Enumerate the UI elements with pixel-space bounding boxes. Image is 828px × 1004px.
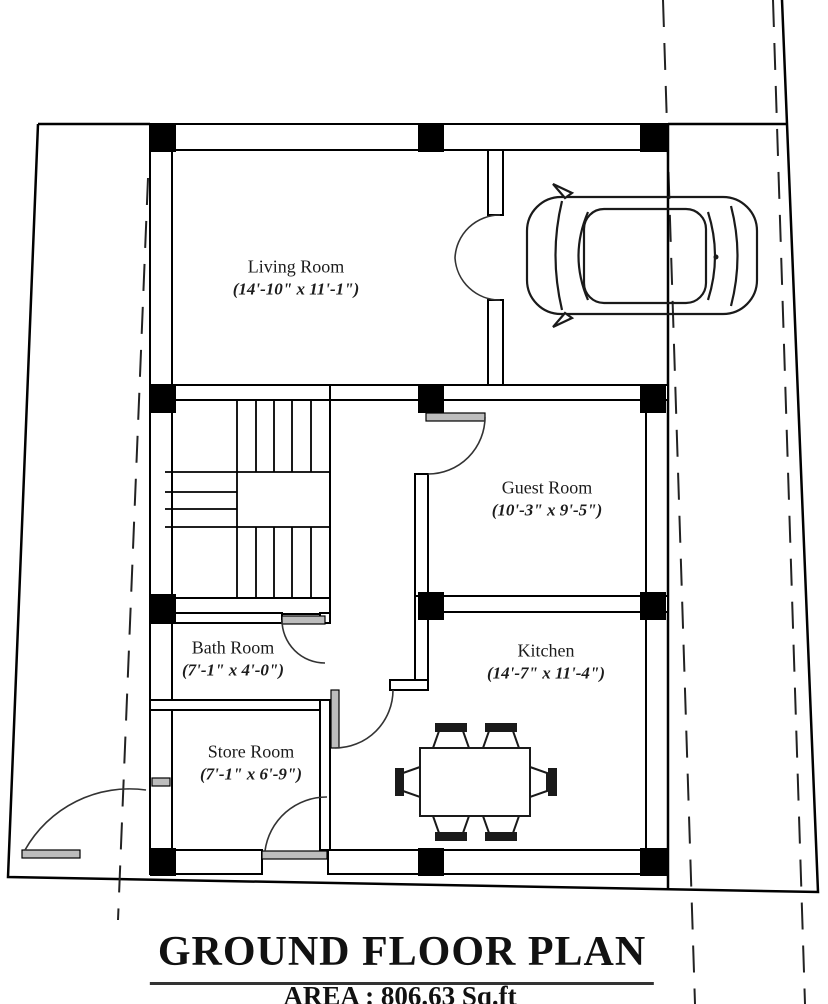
chair xyxy=(433,731,469,748)
door-swing-arc xyxy=(428,417,485,474)
wall-living-right-upper xyxy=(488,150,503,215)
wall-stairs-bottom xyxy=(150,598,330,614)
door-swing-arc xyxy=(282,620,325,663)
wall-living-right-lower xyxy=(488,300,503,385)
wall-bottom-right-segment xyxy=(328,850,668,874)
wall-guest-kitchen-divider xyxy=(418,596,668,612)
bath-room-label: Bath Room (7'-1" x 4'-0") xyxy=(182,636,284,681)
kitchen-label: Kitchen (14'-7" x 11'-4") xyxy=(487,639,605,684)
room-dimensions: (14'-7" x 11'-4") xyxy=(487,663,605,685)
wall-store-right xyxy=(320,700,330,850)
door-leaf xyxy=(331,690,339,748)
room-dimensions: (7'-1" x 6'-9") xyxy=(200,764,302,786)
floor-plan-page: Living Room (14'-10" x 11'-1") Guest Roo… xyxy=(0,0,828,1004)
staircase xyxy=(165,400,330,598)
column xyxy=(640,848,668,876)
setback-line-left xyxy=(118,178,148,920)
bath-room-door xyxy=(282,616,325,663)
car-hood-line xyxy=(556,201,563,310)
column xyxy=(150,594,176,622)
stair-treads-upper xyxy=(256,400,311,472)
kitchen-door xyxy=(331,690,393,748)
column xyxy=(418,124,444,152)
wall-top xyxy=(150,124,668,150)
column xyxy=(640,592,666,620)
store-room-door xyxy=(262,797,327,859)
wall-right xyxy=(646,385,668,874)
plan-title: GROUND FLOOR PLAN xyxy=(150,928,654,985)
column xyxy=(150,124,176,152)
living-room-label: Living Room (14'-10" x 11'-1") xyxy=(233,255,360,300)
chair xyxy=(530,767,547,797)
door-leaf xyxy=(22,850,80,858)
door-leaf xyxy=(426,413,485,421)
car-top-view xyxy=(527,184,757,327)
column xyxy=(640,124,668,152)
room-name: Living Room xyxy=(233,255,360,278)
chair xyxy=(403,767,420,797)
guest-room-label: Guest Room (10'-3" x 9'-5") xyxy=(492,476,602,521)
chair-back xyxy=(486,833,516,840)
wall-guest-left-lower xyxy=(415,474,428,596)
wall-kitchen-left-stub xyxy=(390,680,428,690)
chair-back xyxy=(486,724,516,731)
car-body xyxy=(527,197,757,314)
column xyxy=(418,385,444,413)
double-entrance-door xyxy=(455,215,500,300)
car-cabin xyxy=(584,209,706,303)
door-swing-arc xyxy=(25,789,146,850)
car-mirror-top xyxy=(553,184,572,198)
room-dimensions: (10'-3" x 9'-5") xyxy=(492,500,602,522)
chair xyxy=(433,816,469,833)
door-leaf xyxy=(282,616,325,624)
door-leaf xyxy=(262,851,327,859)
door-swing-arc xyxy=(455,258,500,300)
floor-plan-drawing xyxy=(0,0,828,1004)
dining-table-set xyxy=(396,724,556,840)
dining-table xyxy=(420,748,530,816)
store-room-label: Store Room (7'-1" x 6'-9") xyxy=(200,740,302,785)
main-gate-door xyxy=(22,789,146,858)
column xyxy=(640,385,666,413)
column xyxy=(150,385,176,413)
window-marker xyxy=(152,778,170,786)
chair xyxy=(483,816,519,833)
door-swing-arc xyxy=(335,690,393,748)
chair-back xyxy=(396,769,403,795)
chair xyxy=(483,731,519,748)
room-dimensions: (14'-10" x 11'-1") xyxy=(233,279,360,301)
chair-back xyxy=(436,833,466,840)
column xyxy=(150,848,176,876)
stair-treads-lower xyxy=(256,527,311,598)
car-mirror-bottom xyxy=(553,313,572,327)
room-dimensions: (7'-1" x 4'-0") xyxy=(182,660,284,682)
column xyxy=(418,848,444,876)
room-name: Store Room xyxy=(200,740,302,763)
car-detail-dot xyxy=(714,255,719,260)
guest-room-door xyxy=(426,413,485,474)
room-name: Guest Room xyxy=(492,476,602,499)
chair-back xyxy=(549,769,556,795)
wall-bath-store-divider xyxy=(150,700,330,710)
room-name: Kitchen xyxy=(487,639,605,662)
wall-left xyxy=(150,124,172,874)
door-swing-arc xyxy=(455,215,500,258)
chair-back xyxy=(436,724,466,731)
door-swing-arc xyxy=(265,797,327,851)
wall-interior-upper xyxy=(150,385,668,400)
column xyxy=(418,592,444,620)
plan-area-label: AREA : 806.63 Sq.ft xyxy=(283,981,516,1004)
car-trunk-line xyxy=(731,206,738,306)
room-name: Bath Room xyxy=(182,636,284,659)
